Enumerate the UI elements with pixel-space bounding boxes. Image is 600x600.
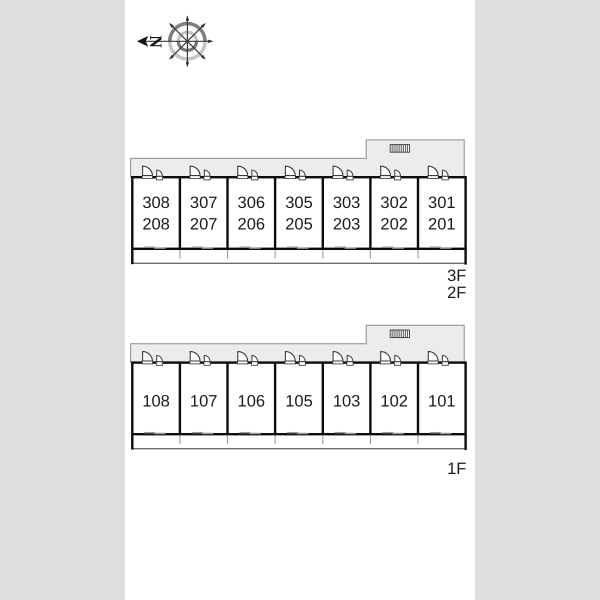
svg-text:108: 108 [142, 392, 170, 410]
svg-text:303: 303 [333, 194, 361, 212]
svg-text:102: 102 [380, 392, 408, 410]
svg-text:301: 301 [428, 194, 456, 212]
svg-text:202: 202 [380, 216, 408, 234]
svg-text:305: 305 [285, 194, 313, 212]
svg-text:201: 201 [428, 216, 456, 234]
svg-text:N: N [146, 35, 166, 48]
svg-text:205: 205 [285, 216, 313, 234]
svg-text:106: 106 [238, 392, 266, 410]
svg-text:208: 208 [142, 216, 170, 234]
svg-text:308: 308 [142, 194, 170, 212]
svg-text:306: 306 [238, 194, 266, 212]
svg-text:1F: 1F [447, 460, 466, 478]
svg-text:3F: 3F [447, 267, 466, 285]
svg-text:203: 203 [333, 216, 361, 234]
svg-text:207: 207 [190, 216, 218, 234]
svg-text:107: 107 [190, 392, 218, 410]
svg-text:2F: 2F [447, 284, 466, 302]
svg-text:206: 206 [238, 216, 266, 234]
svg-text:302: 302 [380, 194, 408, 212]
svg-text:307: 307 [190, 194, 218, 212]
svg-text:101: 101 [428, 392, 456, 410]
svg-text:103: 103 [333, 392, 361, 410]
svg-text:105: 105 [285, 392, 313, 410]
